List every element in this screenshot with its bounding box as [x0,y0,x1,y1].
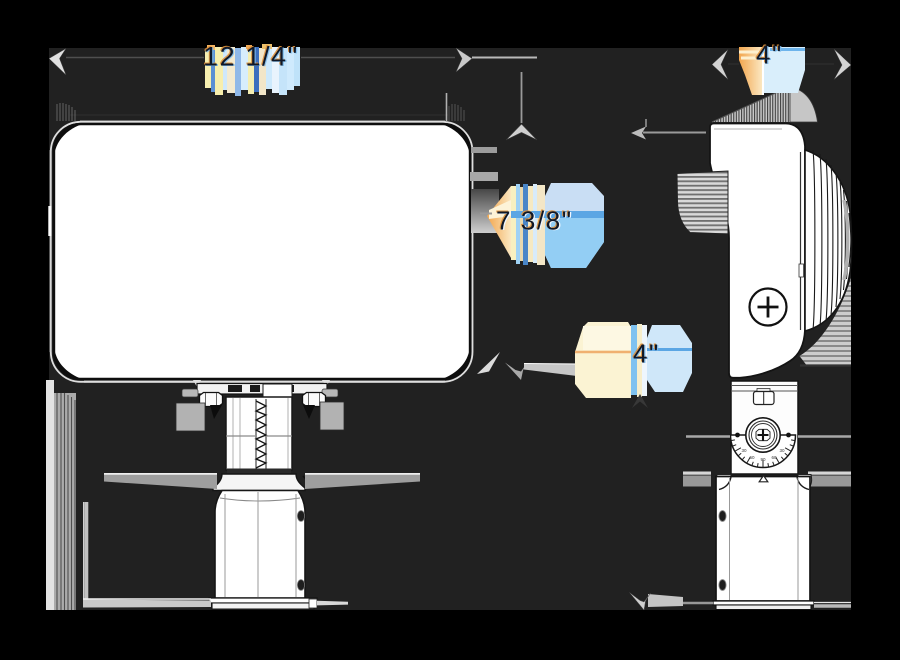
svg-text:4": 4" [633,339,660,369]
svg-text:7 3/8": 7 3/8" [496,206,573,236]
svg-text:30: 30 [779,448,785,453]
svg-text:60: 60 [771,455,777,460]
svg-text:12 1/4": 12 1/4" [203,42,299,72]
svg-text:30: 30 [741,448,747,453]
svg-text:90: 90 [760,457,766,462]
svg-text:4": 4" [756,40,783,70]
svg-text:60: 60 [749,455,755,460]
